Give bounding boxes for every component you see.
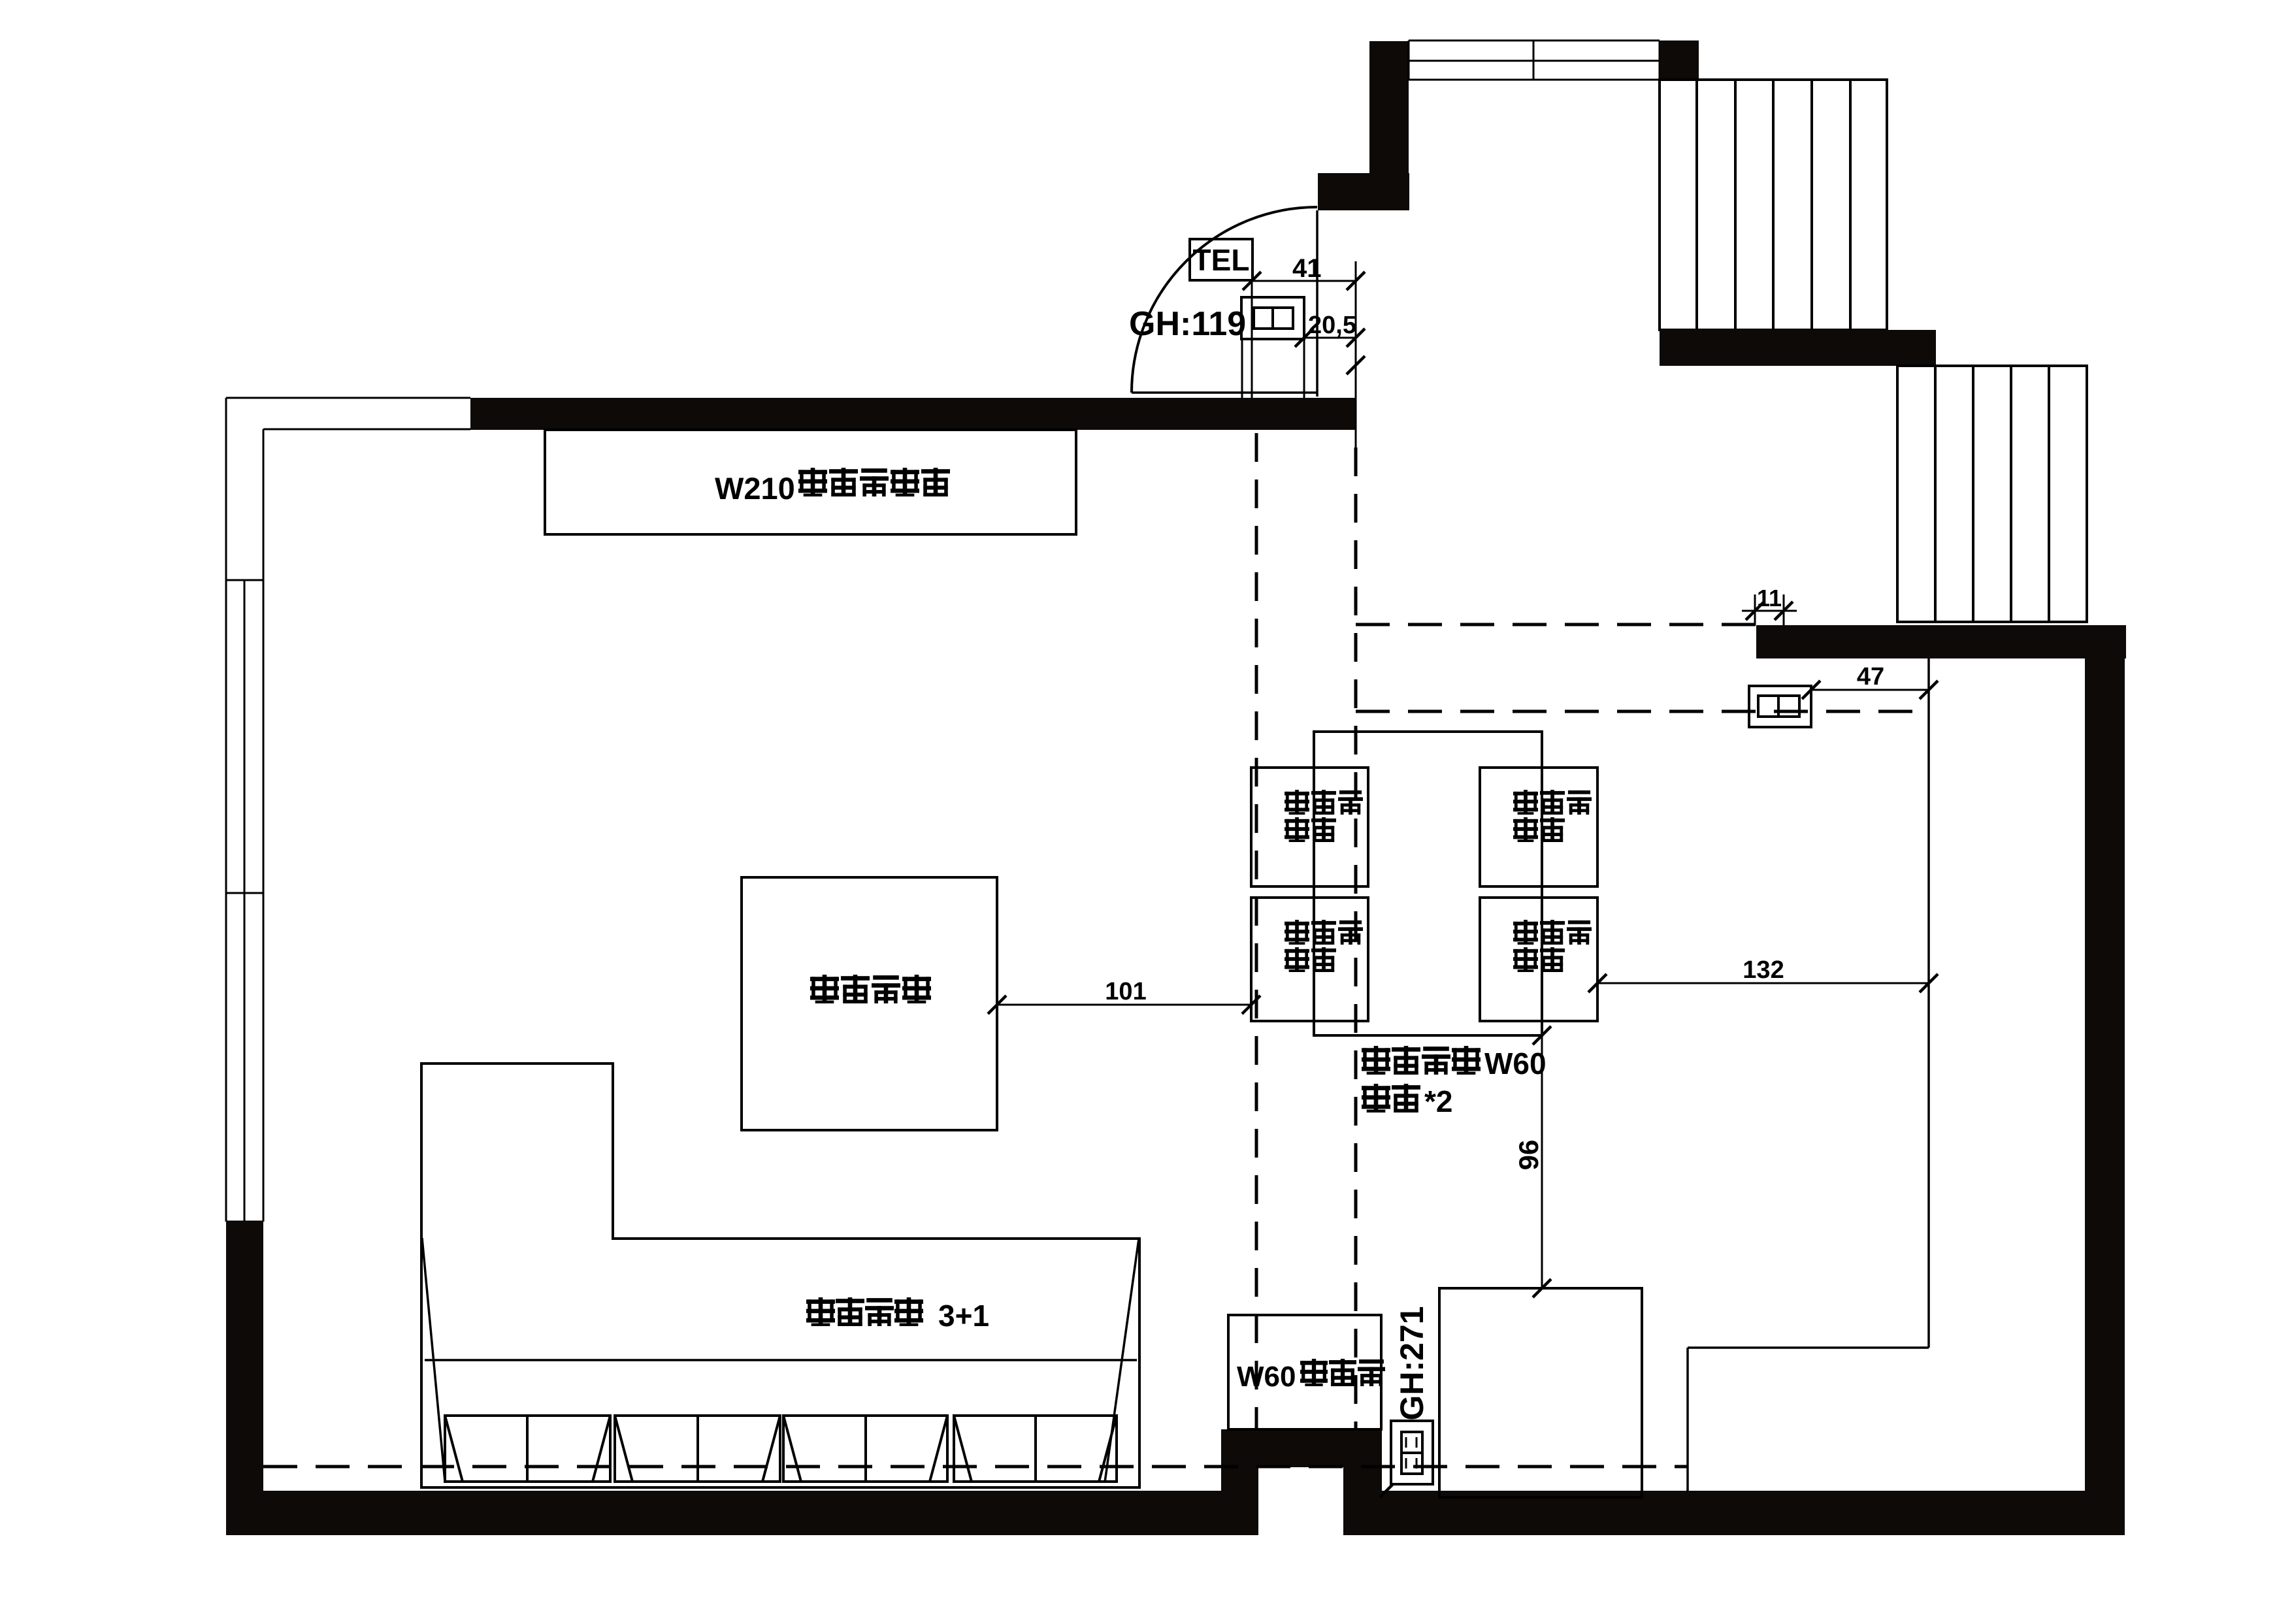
svg-text:47: 47 [1857,663,1884,690]
svg-text:101: 101 [1105,978,1146,1005]
svg-text:W60: W60 [1237,1361,1296,1393]
svg-text:W210: W210 [715,471,795,506]
svg-text:GH:119: GH:119 [1129,305,1246,343]
svg-text:20,5: 20,5 [1308,312,1356,339]
svg-text:11: 11 [1757,585,1782,611]
svg-text:W60: W60 [1484,1047,1547,1080]
svg-text:41: 41 [1292,254,1322,283]
svg-text:TEL: TEL [1193,243,1250,277]
svg-text:96: 96 [1513,1140,1544,1171]
svg-text:GH:271: GH:271 [1394,1306,1430,1420]
svg-text:3+1: 3+1 [938,1299,989,1333]
svg-text:*2: *2 [1424,1084,1452,1118]
svg-text:132: 132 [1743,956,1784,984]
